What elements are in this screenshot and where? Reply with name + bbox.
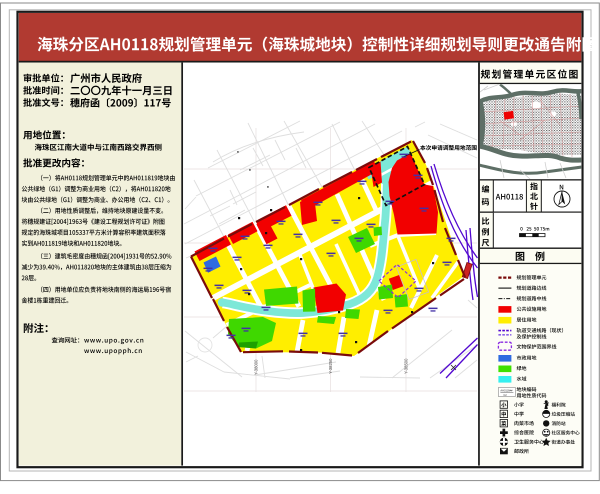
- svg-text:Y-38500: Y-38500: [404, 358, 409, 374]
- svg-text:AH0118##: AH0118##: [500, 388, 513, 392]
- svg-text:C2: C2: [503, 393, 507, 397]
- svg-text:Y-38000: Y-38000: [254, 359, 259, 375]
- svg-text:Y-38250: Y-38250: [328, 358, 333, 374]
